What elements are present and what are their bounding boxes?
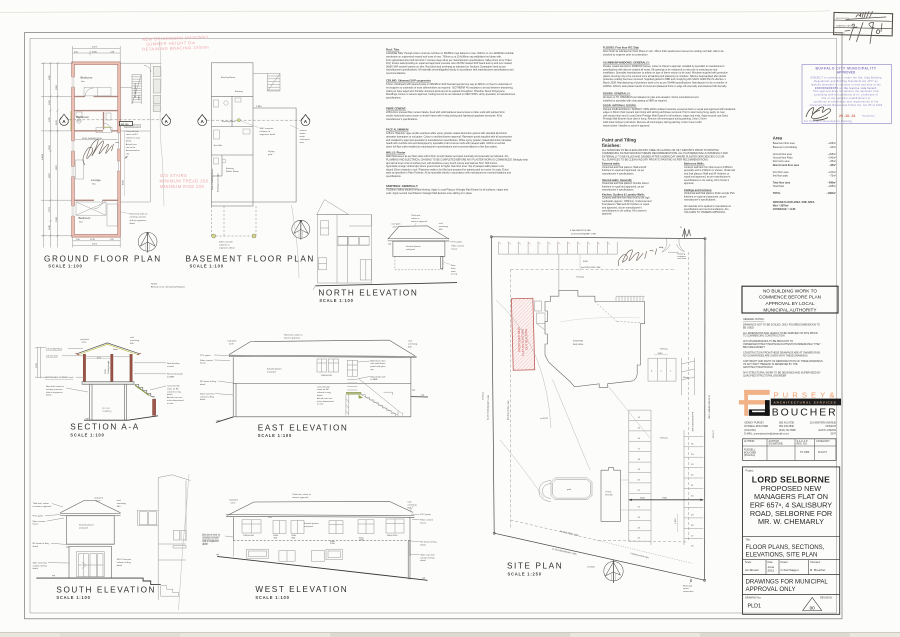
svg-text:COVERAGE = 11.86: COVERAGE = 11.86 — [773, 208, 796, 211]
svg-text:PLD1: PLD1 — [748, 604, 762, 610]
svg-text:EAST ELEVATION: EAST ELEVATION — [258, 423, 349, 432]
svg-text:2373: 2373 — [49, 206, 51, 212]
svg-text:101 WINTERS AVENUE: 101 WINTERS AVENUE — [810, 422, 837, 425]
svg-text:~848m²: ~848m² — [828, 180, 837, 184]
svg-text:Tiled roof, colourto owners ap: Tiled roof, colourto owners approval — [33, 502, 52, 508]
svg-text:SCALE 1:100: SCALE 1:100 — [70, 432, 104, 437]
svg-text:3870: 3870 — [139, 94, 141, 100]
svg-text:MUNICIPAL AUTHORITY: MUNICIPAL AUTHORITY — [763, 308, 817, 313]
svg-text:22.5°: 22.5° — [229, 344, 234, 346]
svg-text:48m² / 3876m²: 48m² / 3876m² — [773, 204, 789, 208]
svg-text:erf 6372: erf 6372 — [540, 417, 549, 420]
svg-text:FLOOR PLANS, SECTIONS,: FLOOR PLANS, SECTIONS, — [746, 544, 825, 551]
svg-text:(043) 722 0908: (043) 722 0908 — [779, 429, 796, 432]
svg-text:2500: 2500 — [49, 144, 51, 150]
svg-text:~1082m²: ~1082m² — [826, 191, 836, 195]
svg-text:Powder coated aluminium WINDOW: Powder coated aluminium WINDOW frames, c… — [603, 65, 728, 88]
svg-text:DRAWING PLAN No: DRAWING PLAN No — [836, 24, 853, 27]
svg-text:roof pitch: roof pitch — [80, 338, 90, 341]
svg-text:GROUND FLOOR PLAN: GROUND FLOOR PLAN — [44, 254, 162, 263]
svg-text:ngl: ngl — [216, 554, 219, 556]
svg-text:C.Kerzhagen: C.Kerzhagen — [781, 568, 799, 572]
svg-text:NOTE:: NOTE: — [151, 284, 158, 286]
svg-text:4473: 4473 — [92, 47, 98, 49]
svg-text:building: building — [103, 409, 112, 413]
svg-text:PVC gutter: PVC gutter — [420, 513, 431, 516]
svg-text:ARCHITECTURAL SERVICES: ARCHITECTURAL SERVICES — [774, 401, 837, 405]
svg-text:Maid's Room: Maid's Room — [226, 171, 239, 173]
svg-text:SW 100: SW 100 — [121, 124, 130, 126]
svg-text:Ceilings and Cornices:: Ceilings and Cornices: — [684, 188, 712, 192]
svg-text:Smooth plaster: Smooth plaster — [406, 245, 421, 248]
svg-text:~73m²: ~73m² — [829, 174, 836, 177]
svg-text:erf 6373: erf 6373 — [712, 430, 715, 439]
svg-text:1500x1200: 1500x1200 — [387, 535, 399, 537]
svg-text:2340: 2340 — [56, 216, 58, 222]
svg-text:1785: 1785 — [49, 116, 51, 122]
svg-text:L/S of Wall Plate: L/S of Wall Plate — [46, 347, 63, 350]
svg-text:APPROVAL ONLY: APPROVAL ONLY — [746, 586, 796, 593]
svg-text:~43m²: ~43m² — [829, 146, 836, 149]
svg-text:3635: 3635 — [92, 51, 98, 53]
svg-text:Ceiling height: Ceiling height — [107, 360, 110, 374]
svg-text:082 440 6830: 082 440 6830 — [779, 425, 795, 428]
svg-text:22.5°: 22.5° — [393, 227, 398, 229]
svg-text:SCALE 1:100: SCALE 1:100 — [56, 595, 90, 600]
svg-text:1000: 1000 — [49, 99, 51, 105]
svg-text:New Ground floor area: New Ground floor area — [773, 164, 800, 167]
svg-text:Existing: Existing — [235, 90, 243, 93]
svg-text:erf 6501: erf 6501 — [587, 566, 596, 569]
svg-text:External walls:: External walls: — [602, 162, 620, 166]
svg-text:2011: 2011 — [768, 568, 775, 572]
svg-text:All materials to be applied to: All materials to be applied to manufactu… — [684, 205, 732, 214]
svg-text:Total floor area: Total floor area — [773, 181, 791, 184]
svg-text:Bedroom: Bedroom — [81, 76, 93, 80]
svg-text:PVC gutter: PVC gutter — [33, 515, 44, 518]
svg-text:EAST LONDON: EAST LONDON — [819, 429, 837, 432]
svg-text:LORD SELBORNE: LORD SELBORNE — [752, 474, 830, 484]
svg-text:~55m²: ~55m² — [829, 160, 836, 163]
svg-text:~48m²: ~48m² — [829, 163, 836, 167]
svg-text:2340: 2340 — [49, 224, 51, 230]
svg-text:~228m²: ~228m² — [828, 142, 837, 145]
svg-text:MR. W. CHEMARLY: MR. W. CHEMARLY — [758, 517, 824, 526]
svg-text:Parking: Parking — [660, 347, 668, 350]
svg-text:UP 16 RISERS: UP 16 RISERS — [135, 83, 137, 98]
svg-text:2700: 2700 — [105, 368, 107, 374]
svg-text:4 SALISBURY ROAD: 4 SALISBURY ROAD — [570, 229, 591, 232]
svg-text:FIBRE CEMENT:: FIBRE CEMENT: — [386, 107, 406, 111]
svg-text:WEST ELEVATION: WEST ELEVATION — [255, 585, 348, 594]
svg-text:LAFARGE 'Elite' through colour: LAFARGE 'Elite' through colour concrete … — [386, 52, 514, 75]
svg-text:Kitchen, Scullery & Laundry Wa: Kitchen, Scullery & Laundry Walls: — [602, 192, 645, 196]
svg-text:22.5°: 22.5° — [82, 342, 87, 344]
svg-text:Paint and Tiling: Paint and Tiling — [602, 138, 636, 143]
svg-text:O/S STAIRS: O/S STAIRS — [160, 173, 187, 178]
svg-text:082 401 6708: 082 401 6708 — [779, 422, 795, 425]
svg-text:2600: 2600 — [658, 353, 664, 355]
svg-text:Drawn:: Drawn: — [781, 561, 789, 564]
svg-text:CEILING: Skimmed SAP suspensio: CEILING: Skimmed SAP suspension — [386, 79, 431, 83]
svg-text:2.880: 2.880 — [256, 106, 262, 108]
svg-text:3870: 3870 — [49, 172, 51, 178]
svg-text:ST 1080: ST 1080 — [800, 451, 810, 454]
svg-text:NO BUILDING WORK TO: NO BUILDING WORK TO — [763, 288, 817, 293]
svg-text:PrArchT: PrArchT — [818, 451, 827, 454]
svg-text:Area: Area — [773, 136, 783, 141]
svg-text:4m BUILDING LINE: 4m BUILDING LINE — [691, 412, 693, 432]
svg-text:First floor area: First floor area — [773, 171, 789, 174]
svg-text:ngl: ngl — [86, 418, 89, 420]
svg-text:SCALE 1:100: SCALE 1:100 — [258, 433, 292, 438]
svg-text:MINIMUM RISE 205: MINIMUM RISE 205 — [160, 184, 205, 189]
svg-text:2000x1200: 2000x1200 — [321, 375, 333, 377]
svg-text:Exist Ba.: Exist Ba. — [214, 144, 223, 147]
svg-text:E-MAIL: purseyboucher@absamail: E-MAIL: purseyboucher@absamail.co.za — [744, 432, 789, 435]
svg-text:22.5°: 22.5° — [231, 503, 236, 505]
svg-text:31.86 BOUNDARY LINE: 31.86 BOUNDARY LINE — [708, 395, 711, 419]
svg-text:Basement floor area: Basement floor area — [773, 142, 796, 145]
svg-text:00: 00 — [810, 605, 816, 610]
svg-text:APPROVED: APPROVED — [837, 71, 856, 75]
svg-text:ngl: ngl — [388, 244, 391, 246]
svg-text:2145 1100/800 1100: 2145 1100/800 1100 — [82, 138, 103, 140]
svg-text:2.600: 2.600 — [675, 518, 677, 524]
svg-text:6m BUILDING LINE: 6m BUILDING LINE — [581, 267, 601, 269]
svg-text:PVC gutter: PVC gutter — [452, 241, 463, 244]
svg-text:roof pitch: roof pitch — [94, 496, 104, 499]
svg-text:Existing Room: Existing Room — [221, 76, 235, 79]
svg-text:125mm 'Watertite' ogee profile: 125mm 'Watertite' ogee profile seamless … — [386, 132, 513, 148]
svg-text:Checked:: Checked: — [810, 561, 821, 564]
svg-text:1500: 1500 — [359, 540, 365, 542]
svg-text:Internal walls: Generally: Internal walls: Generally — [602, 178, 632, 182]
svg-text:UNFINISHED SCREED level: UNFINISHED SCREED level — [45, 377, 74, 379]
svg-text:ngl: ngl — [422, 578, 425, 580]
svg-text:VINCENT: VINCENT — [825, 425, 836, 428]
svg-text:Drying: Drying — [268, 150, 275, 153]
svg-text:Date:: Date: — [768, 561, 774, 564]
svg-text:first floor patio: first floor patio — [773, 174, 789, 177]
svg-text:SIDNEY PURSEY: SIDNEY PURSEY — [744, 422, 764, 425]
svg-text:ALUMINIUM WINDOWS: GENERALLY:: ALUMINIUM WINDOWS: GENERALLY: — [603, 61, 650, 65]
svg-text:1500x1200: 1500x1200 — [243, 535, 255, 537]
svg-text:Ground floor Patio: Ground floor Patio — [773, 156, 793, 159]
svg-text:BOUCHER: BOUCHER — [772, 407, 838, 418]
svg-text:CATEGORY:: CATEGORY: — [816, 440, 830, 443]
svg-text:Total Patio: Total Patio — [773, 185, 785, 188]
svg-text:FLOORS: First floor R/C Slab: FLOORS: First floor R/C Slab — [603, 46, 639, 50]
svg-text:2700: 2700 — [36, 362, 38, 368]
svg-text:L/S of Lintel: L/S of Lintel — [46, 355, 58, 358]
svg-text:roof pitch: roof pitch — [392, 223, 402, 226]
svg-text:BASEMENT FLOOR PLAN: BASEMENT FLOOR PLAN — [186, 254, 315, 263]
svg-text:SCALE 1:250: SCALE 1:250 — [508, 572, 542, 577]
svg-text:Parking: Parking — [576, 276, 584, 279]
svg-text:Ramp: Ramp — [683, 377, 690, 379]
svg-text:and paint: and paint — [406, 248, 415, 251]
svg-text:APPROVAL BY LOCAL: APPROVAL BY LOCAL — [766, 301, 815, 306]
svg-text:Line of building above: Line of building above — [212, 168, 214, 190]
svg-text:pool: pool — [567, 489, 572, 491]
svg-text:22.5°: 22.5° — [96, 500, 101, 502]
svg-text:BUILDING: BUILDING — [573, 344, 584, 346]
svg-text:Existing: Existing — [226, 167, 234, 170]
svg-text:(PrArchm): (PrArchm) — [744, 454, 755, 457]
svg-text:FACE ALUMINIUM: FACE ALUMINIUM — [386, 128, 408, 132]
svg-text:~208m²: ~208m² — [828, 185, 837, 188]
svg-text:All work to be checked by Engi: All work to be checked by Engineer — [151, 286, 185, 289]
svg-text:AUTHOR:: AUTHOR: — [744, 440, 755, 443]
svg-text:Pool room area: Pool room area — [773, 160, 790, 163]
svg-text:DOOR: INTERNAL DOORS:: DOOR: INTERNAL DOORS: — [603, 103, 637, 107]
svg-text:NORTH ELEVATION: NORTH ELEVATION — [318, 289, 418, 298]
svg-text:Basement out building: Basement out building — [773, 146, 798, 149]
svg-text:1200: 1200 — [330, 543, 336, 545]
svg-text:ROOM: ROOM — [606, 495, 613, 497]
svg-text:SITE PLAN: SITE PLAN — [507, 561, 563, 570]
svg-text:POOL: POOL — [606, 492, 613, 494]
svg-text:ngl: ngl — [217, 420, 220, 422]
svg-text:Ground floor area: Ground floor area — [773, 153, 793, 156]
svg-text:SCALE 1:100: SCALE 1:100 — [255, 595, 289, 600]
svg-text:SOUTH ELEVATION: SOUTH ELEVATION — [56, 585, 156, 594]
svg-text:~208m²: ~208m² — [828, 153, 837, 156]
svg-text:7940: 7940 — [662, 498, 668, 500]
svg-text:finishes:: finishes: — [602, 143, 621, 148]
svg-text:Occupied Health Bylaws and Pub: Occupied Health Bylaws and Public Act, A… — [810, 104, 883, 107]
svg-text:DRAWINGS FOR MUNICIPAL: DRAWINGS FOR MUNICIPAL — [746, 579, 829, 586]
svg-text:5000: 5000 — [56, 84, 58, 90]
svg-text:RUSSELL BOUCHER: RUSSELL BOUCHER — [744, 425, 768, 428]
svg-text:ngl: ngl — [421, 395, 424, 397]
svg-text:roof pitch: roof pitch — [229, 499, 239, 502]
svg-text:5247: 5247 — [831, 432, 837, 435]
svg-text:PVC gutter: PVC gutter — [200, 354, 211, 357]
svg-text:Existing sewer pipe: Existing sewer pipe — [217, 172, 220, 192]
svg-text:GROUND FLOOR AREA / ERF AREA: GROUND FLOOR AREA / ERF AREA — [773, 201, 815, 204]
svg-text:SIGNATURE:: SIGNATURE: — [769, 443, 784, 446]
svg-text:SECTION A-A: SECTION A-A — [70, 423, 139, 432]
svg-text:Bathroom Walls:: Bathroom Walls: — [684, 162, 705, 166]
svg-text:MINIMUM TREAD 250: MINIMUM TREAD 250 — [160, 179, 209, 184]
svg-text:3870: 3870 — [56, 164, 58, 170]
svg-text:2400: 2400 — [49, 74, 51, 80]
svg-text:erf 6371: erf 6371 — [482, 391, 485, 400]
svg-text:R. Boucher: R. Boucher — [810, 568, 825, 572]
svg-text:Scale:: Scale: — [745, 561, 752, 564]
svg-text:SKIRTINGS: GENERALLY:: SKIRTINGS: GENERALLY: — [386, 184, 418, 188]
svg-text:COMMENCE BEFORE PLAN: COMMENCE BEFORE PLAN — [759, 295, 821, 300]
svg-text:14640: 14640 — [42, 153, 44, 160]
svg-text:SCALE 1:100: SCALE 1:100 — [319, 298, 353, 303]
svg-text:5000: 5000 — [640, 498, 646, 500]
svg-text:97m: 97m — [97, 358, 101, 360]
svg-text:~214m²: ~214m² — [828, 171, 837, 174]
svg-text:DRAWING No:: DRAWING No: — [745, 596, 761, 599]
svg-text:Bathroom: Bathroom — [77, 115, 90, 119]
svg-text:(PrArchW): (PrArchW) — [744, 429, 756, 432]
svg-text:WALLS: Plaster: WALLS: Plaster — [386, 151, 405, 155]
svg-text:20 -10- 24: 20 -10- 24 — [839, 114, 855, 118]
svg-text:4m BUILDING LINE: 4m BUILDING LINE — [508, 400, 510, 420]
svg-text:ELEVATIONS, SITE PLAN: ELEVATIONS, SITE PLAN — [746, 551, 818, 558]
svg-text:TOTAL: TOTAL — [773, 192, 781, 195]
svg-text:4473: 4473 — [92, 244, 98, 246]
svg-text:1120: 1120 — [56, 120, 58, 125]
svg-text:PURSEY&: PURSEY& — [774, 391, 839, 400]
svg-text:3735: 3735 — [90, 239, 96, 241]
svg-text:RECEIVED: RECEIVED — [835, 33, 845, 35]
svg-text:Existing Store: Existing Store — [222, 120, 236, 123]
svg-text:50.550 BOUNDARY LINE: 50.550 BOUNDARY LINE — [571, 233, 597, 236]
svg-text:REVISION:: REVISION: — [820, 596, 833, 599]
svg-text:Title:: Title: — [746, 539, 752, 542]
svg-text:31.357 BOUNDARY LINE: 31.357 BOUNDARY LINE — [487, 394, 490, 420]
svg-text:~140m²: ~140m² — [828, 156, 837, 159]
svg-text:EXISTING: EXISTING — [573, 341, 584, 343]
svg-text:GENERAL NOTES:: GENERAL NOTES: — [743, 318, 765, 321]
svg-text:For Director of Development Pl: For Director of Development Planning — [804, 120, 852, 123]
svg-text:Bedroom: Bedroom — [79, 216, 91, 220]
svg-text:9mm: 9mm — [113, 349, 118, 351]
svg-text:Parking: Parking — [660, 436, 668, 439]
svg-text:8030: 8030 — [123, 179, 125, 185]
svg-text:roof pitch: roof pitch — [227, 340, 237, 343]
svg-text:Roof: Tiles: Roof: Tiles — [386, 48, 400, 52]
svg-text:SCALE 1:100: SCALE 1:100 — [190, 264, 224, 269]
svg-text:SCALE 1:100: SCALE 1:100 — [48, 264, 82, 269]
svg-text:DOORS: GENERALLY:: DOORS: GENERALLY: — [603, 92, 631, 96]
svg-text:ngl: ngl — [66, 547, 69, 549]
svg-text:As Shown: As Shown — [745, 568, 759, 572]
svg-text:Lounge: Lounge — [91, 178, 101, 182]
svg-text:Project:: Project: — [746, 469, 755, 472]
svg-text:4500: 4500 — [583, 261, 589, 263]
svg-text:OUT BUILDING: OUT BUILDING — [524, 328, 529, 350]
svg-text:ngl: ngl — [412, 390, 415, 392]
svg-text:Eng Architect: Eng Architect — [862, 115, 875, 118]
svg-text:REG. NO.: REG. NO. — [797, 443, 808, 446]
svg-text:ngl: ngl — [52, 575, 55, 577]
